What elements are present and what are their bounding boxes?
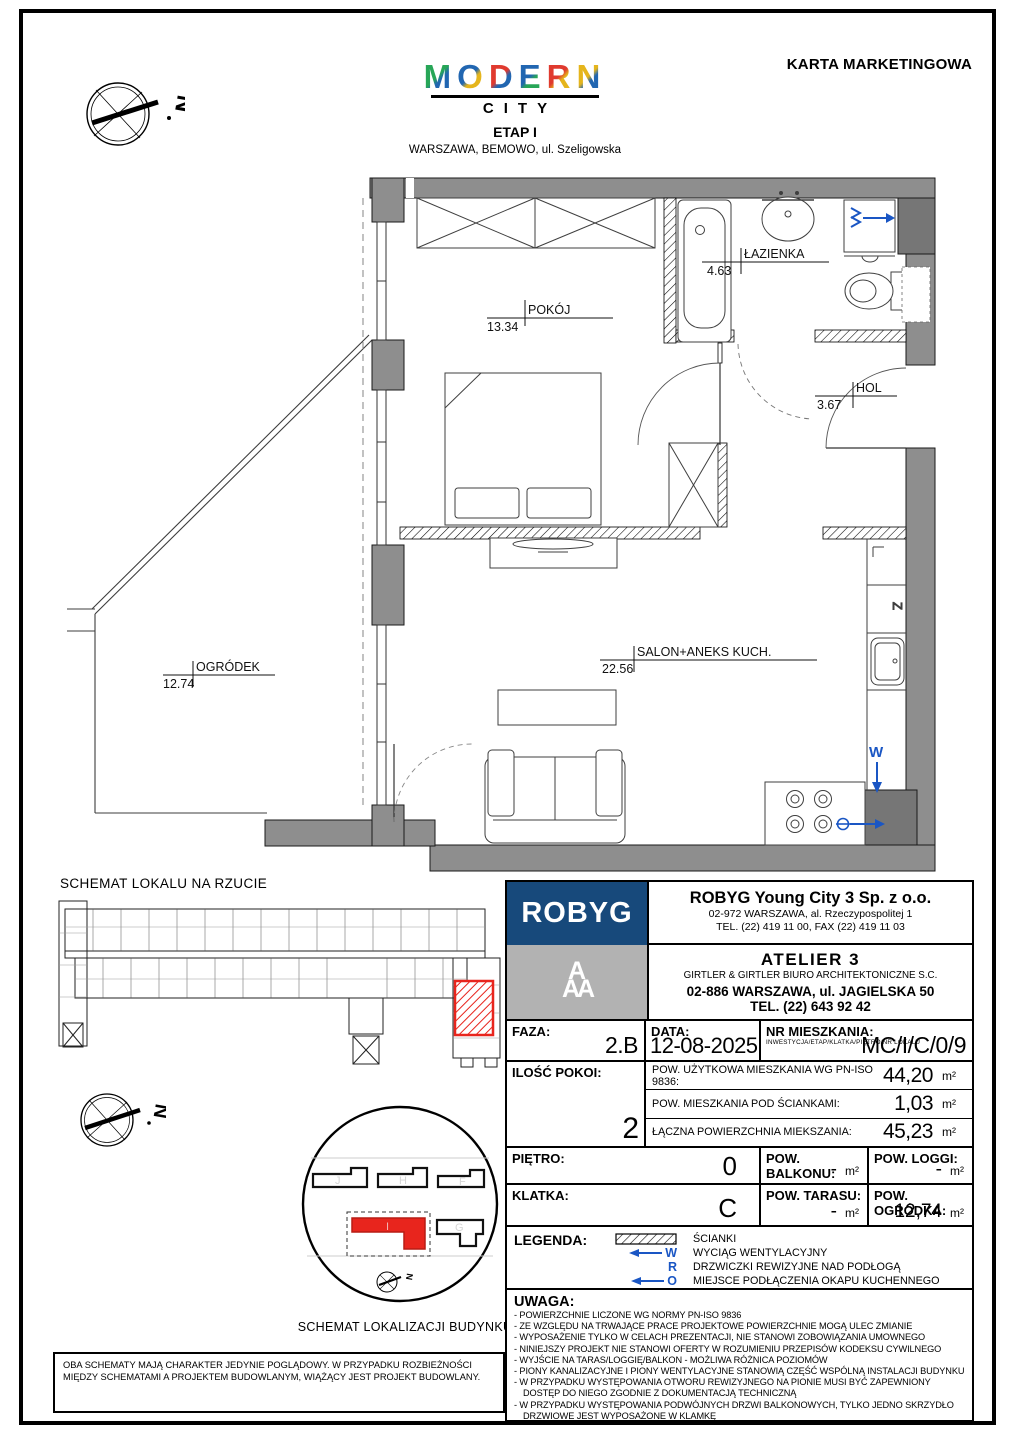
wardrobe-icon <box>417 198 655 248</box>
stove-icon <box>765 782 865 845</box>
legend-item-scianki: ŚCIANKI <box>602 1232 968 1246</box>
kitchen-vent-icon: W <box>869 744 884 793</box>
faza-value: 2.B <box>605 1032 638 1059</box>
row-faza-data-nr: FAZA: 2.B DATA: 12-08-2025 NR MIESZKANIA… <box>505 1019 974 1062</box>
toilet-icon <box>845 272 904 310</box>
service-niche <box>902 267 930 322</box>
row-pietro: PIĘTRO: 0 POW. BALKONU: -m² POW. LOGGI: … <box>505 1146 974 1185</box>
klatka-cell: KLATKA: C <box>507 1185 759 1225</box>
page-title: KARTA MARKETINGOWA <box>756 56 972 73</box>
room-label-ogrodek: OGRÓDEK 12.74 <box>163 659 275 691</box>
legenda-title: LEGENDA: <box>514 1232 587 1248</box>
windows <box>377 222 386 805</box>
footer-disclaimer: OBA SCHEMATY MAJĄ CHARAKTER JEDYNIE POGL… <box>53 1352 505 1413</box>
sofa-icon <box>485 750 625 843</box>
svg-text:OGRÓDEK: OGRÓDEK <box>196 659 261 674</box>
building-floor-plan <box>57 893 504 1083</box>
building-location-diagram: J H F I G N <box>283 1086 517 1322</box>
pokoi-value: 2 <box>622 1112 639 1146</box>
wall-gap <box>406 178 414 198</box>
dishwasher-label: Z <box>890 602 905 610</box>
fridge-corner-mark <box>873 547 884 557</box>
balkon-cell: POW. BALKONU: -m² <box>759 1148 867 1183</box>
svg-text:W: W <box>869 744 884 761</box>
area-row: POW. MIESZKANIA POD ŚCIANKAMI: 1,03 m² <box>646 1090 972 1118</box>
etap-label: ETAP I <box>405 124 625 140</box>
area-row: ŁĄCZNA POWIERZCHNIA MIEKSZANIA: 45,23 m² <box>646 1119 972 1146</box>
compass-icon: N <box>70 62 185 167</box>
logo-divider <box>431 95 599 98</box>
legend-item-wyciag: W WYCIĄG WENTYLACYJNY <box>602 1246 968 1260</box>
companies-info: ROBYG Young City 3 Sp. z o.o. 02-972 WAR… <box>647 882 972 1019</box>
balcony-door-window <box>377 625 386 805</box>
data-value: 12-08-2025 <box>650 1033 758 1059</box>
project-address: WARSZAWA, BEMOWO, ul. Szeligowska <box>370 144 660 156</box>
faza-cell: FAZA: 2.B <box>507 1021 644 1060</box>
uwaga-title: UWAGA: <box>514 1294 966 1310</box>
uwaga-note: - NINIEJSZY PROJEKT NIE STANOWI OFERTY W… <box>514 1344 966 1355</box>
svg-text:22.56: 22.56 <box>602 662 633 676</box>
salon-window <box>377 390 386 545</box>
svg-text:3.67: 3.67 <box>817 398 841 412</box>
svg-text:HOL: HOL <box>856 381 882 395</box>
uwaga-box: UWAGA: - POWIERZCHNIE LICZONE WG NORMY P… <box>505 1288 974 1422</box>
compass-icon-2: N <box>66 1076 166 1166</box>
developer-info: ROBYG Young City 3 Sp. z o.o. 02-972 WAR… <box>649 882 972 945</box>
aaa-bottom: AA <box>562 978 592 1000</box>
floor-plan: Z W POKÓJ 13.34 <box>57 172 965 874</box>
legend-item-okap: O MIEJSCE PODŁĄCZENIA OKAPU KUCHENNEGO <box>602 1274 968 1288</box>
robyg-logo: ROBYG <box>507 882 647 945</box>
loggi-cell: POW. LOGGI: -m² <box>867 1148 972 1183</box>
developer-address: 02-972 WARSZAWA, al. Rzeczypospolitej 1 <box>649 908 972 921</box>
balcony-door-arc <box>394 744 472 822</box>
area-row: POW. UŻYTKOWA MIESZKANIA WG PN-ISO 9836:… <box>646 1062 972 1090</box>
atelier3-aaa-logo: A AA <box>507 945 647 1019</box>
bathroom-door-arc <box>738 344 813 419</box>
uwaga-note: - PIONY KANALIZACYJNE I PIONY WENTYLACYJ… <box>514 1366 966 1377</box>
svg-text:J: J <box>335 1175 341 1187</box>
svg-text:13.34: 13.34 <box>487 320 518 334</box>
kitchen-sink-icon <box>871 638 904 685</box>
developer-name: ROBYG Young City 3 Sp. z o.o. <box>649 889 972 908</box>
garden-boundary <box>67 335 372 813</box>
svg-text:ŁAZIENKA: ŁAZIENKA <box>744 247 805 261</box>
highlighted-unit <box>455 981 493 1035</box>
modern-logo-city: CITY <box>415 100 615 117</box>
architect-name: ATELIER 3 <box>649 950 972 970</box>
schemat-lokalizacji-title: SCHEMAT LOKALIZACJI BUDYNKU <box>295 1320 515 1334</box>
tv-cabinet-icon <box>490 538 617 568</box>
svg-text:I: I <box>386 1221 389 1233</box>
nr-mieszkania-cell: NR MIESZKANIA: INWESTYCJA/ETAP/KLATKA/PI… <box>759 1021 972 1060</box>
bed-icon <box>445 373 601 525</box>
bedroom-corner-wardrobe-icon <box>669 443 718 527</box>
klatka-value: C <box>718 1193 737 1224</box>
svg-text:SALON+ANEKS KUCH.: SALON+ANEKS KUCH. <box>637 645 771 659</box>
row-pokoi-areas: ILOŚĆ POKOI: 2 POW. UŻYTKOWA MIESZKANIA … <box>505 1060 974 1148</box>
legenda-box: LEGENDA: ŚCIANKI W WYCIĄG WEN <box>505 1225 974 1290</box>
uwaga-note: - WYJŚCIE NA TARAS/LOGGIĘ/BALKON - MOŻLI… <box>514 1355 966 1366</box>
architect-phone: TEL. (22) 643 92 42 <box>649 999 972 1014</box>
schemat-lokalu-title: SCHEMAT LOKALU NA RZUCIE <box>60 876 267 891</box>
uwaga-note: - WYPOSAŻENIE TYLKO W CELACH PREZENTACJI… <box>514 1332 966 1343</box>
uwaga-note: - W PRZYPADKU WYSTĘPOWANIA OTWORU REWIZY… <box>514 1377 966 1399</box>
arrow-left-icon <box>631 1276 665 1286</box>
ogrodek-pow-cell: POW. OGRÓDKA: 12,74m² <box>867 1185 972 1225</box>
room-label-hol: HOL 3.67 <box>815 381 897 412</box>
modern-city-logo: MODERN CITY <box>415 60 615 117</box>
row-klatka: KLATKA: C POW. TARASU: -m² POW. OGRÓDKA:… <box>505 1183 974 1227</box>
pietro-value: 0 <box>723 1151 737 1182</box>
ilosc-pokoi-cell: ILOŚĆ POKOI: 2 <box>507 1062 644 1146</box>
bedroom-door-arc <box>638 363 720 445</box>
salon-furniture <box>485 538 865 845</box>
modern-logo-word: MODERN <box>415 60 615 94</box>
wall-hatch-icon <box>615 1233 677 1245</box>
corridor-partition <box>718 343 722 363</box>
data-cell: DATA: 12-08-2025 <box>644 1021 759 1060</box>
marketing-card: KARTA MARKETINGOWA MODERN CITY ETAP I WA… <box>0 0 1018 1440</box>
uwaga-note: - W PRZYPADKU WYSTĘPOWANIA PODWÓJNYCH DR… <box>514 1400 966 1422</box>
pietro-cell: PIĘTRO: 0 <box>507 1148 759 1183</box>
svg-text:H: H <box>399 1175 407 1187</box>
coffee-table-icon <box>498 690 616 725</box>
svg-text:POKÓJ: POKÓJ <box>528 302 570 317</box>
north-letter: N <box>169 93 185 115</box>
architect-address: 02-886 WARSZAWA, ul. JAGIELSKA 50 <box>649 984 972 999</box>
developer-logos: ROBYG A AA <box>507 882 647 1019</box>
room-label-salon: SALON+ANEKS KUCH. 22.56 <box>600 645 817 676</box>
svg-text:12.74: 12.74 <box>163 677 194 691</box>
room-label-pokoj: POKÓJ 13.34 <box>487 300 613 334</box>
architect-info: ATELIER 3 GIRTLER & GIRTLER BIURO ARCHIT… <box>649 945 972 1019</box>
kitchen-shaft <box>863 790 917 845</box>
legend-item-rewizyjne: R DRZWICZKI REWIZYJNE NAD PODŁOGĄ <box>602 1260 968 1274</box>
taras-cell: POW. TARASU: -m² <box>759 1185 867 1225</box>
svg-text:4.63: 4.63 <box>707 264 731 278</box>
developer-phone: TEL. (22) 419 11 00, FAX (22) 419 11 03 <box>649 921 972 934</box>
washbasin-icon <box>762 192 814 242</box>
logos-block: ROBYG A AA ROBYG Young City 3 Sp. z o.o.… <box>505 880 974 1021</box>
areas-list: POW. UŻYTKOWA MIESZKANIA WG PN-ISO 9836:… <box>644 1062 972 1146</box>
bathroom-shaft <box>898 198 935 254</box>
svg-text:G: G <box>455 1222 464 1234</box>
svg-text:N: N <box>149 1102 166 1120</box>
uwaga-note: - ZE WZGLĘDU NA TRWAJĄCE PRACE PROJEKTOW… <box>514 1321 966 1332</box>
arrow-left-icon <box>629 1248 663 1258</box>
svg-text:F: F <box>459 1176 466 1188</box>
architect-studio: GIRTLER & GIRTLER BIURO ARCHITEKTONICZNE… <box>649 970 972 982</box>
uwaga-note: - POWIERZCHNIE LICZONE WG NORMY PN-ISO 9… <box>514 1310 966 1321</box>
nr-value: MC/I/C/0/9 <box>861 1032 966 1059</box>
